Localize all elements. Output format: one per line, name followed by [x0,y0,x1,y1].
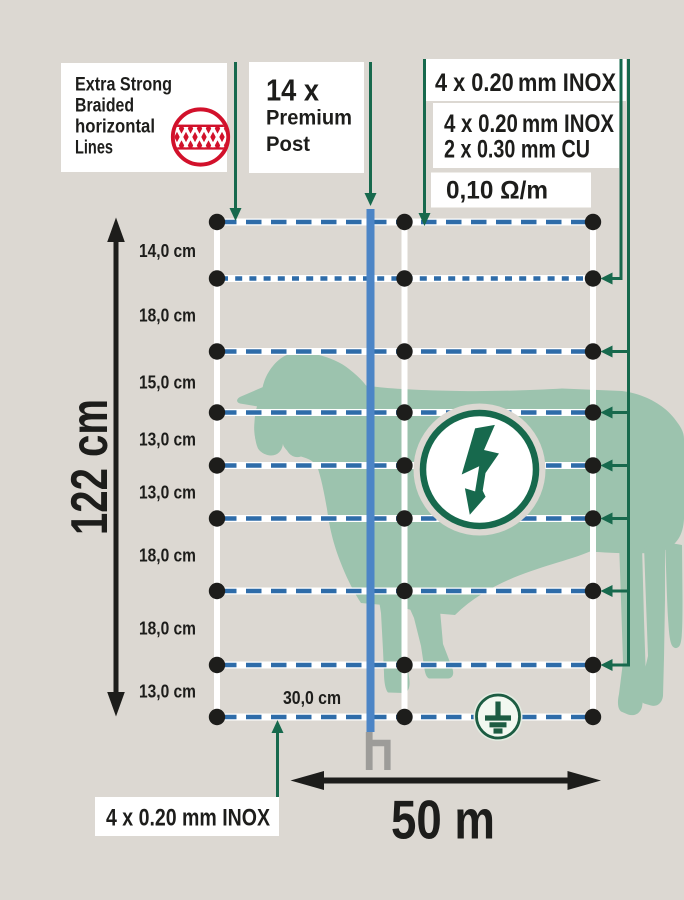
svg-text:horizontal: horizontal [75,117,155,138]
svg-text:30,0 cm: 30,0 cm [283,687,341,708]
svg-text:4 x 0.20 mm INOX: 4 x 0.20 mm INOX [435,69,616,97]
svg-text:4 x 0.20 mm INOX: 4 x 0.20 mm INOX [444,110,614,138]
svg-text:Lines: Lines [75,138,113,159]
svg-text:13,0 cm: 13,0 cm [139,429,196,450]
svg-text:14,0 cm: 14,0 cm [139,240,196,261]
svg-text:Braided: Braided [75,96,134,117]
svg-text:18,0 cm: 18,0 cm [139,618,196,639]
svg-text:2 x 0.30 mm CU: 2 x 0.30 mm CU [444,136,590,164]
svg-text:4 x 0.20 mm INOX: 4 x 0.20 mm INOX [106,805,270,832]
svg-text:18,0 cm: 18,0 cm [139,544,196,565]
svg-text:18,0 cm: 18,0 cm [139,305,196,326]
svg-text:13,0 cm: 13,0 cm [139,681,196,702]
svg-text:Extra Strong: Extra Strong [75,75,172,96]
svg-text:Post: Post [266,132,310,156]
svg-text:50 m: 50 m [391,789,495,851]
svg-text:15,0 cm: 15,0 cm [139,372,196,393]
svg-text:Premium: Premium [266,106,352,130]
svg-text:0,10 Ω/m: 0,10 Ω/m [446,177,548,205]
svg-text:122 cm: 122 cm [61,399,119,535]
svg-text:13,0 cm: 13,0 cm [139,482,196,503]
svg-text:14 x: 14 x [266,73,320,108]
